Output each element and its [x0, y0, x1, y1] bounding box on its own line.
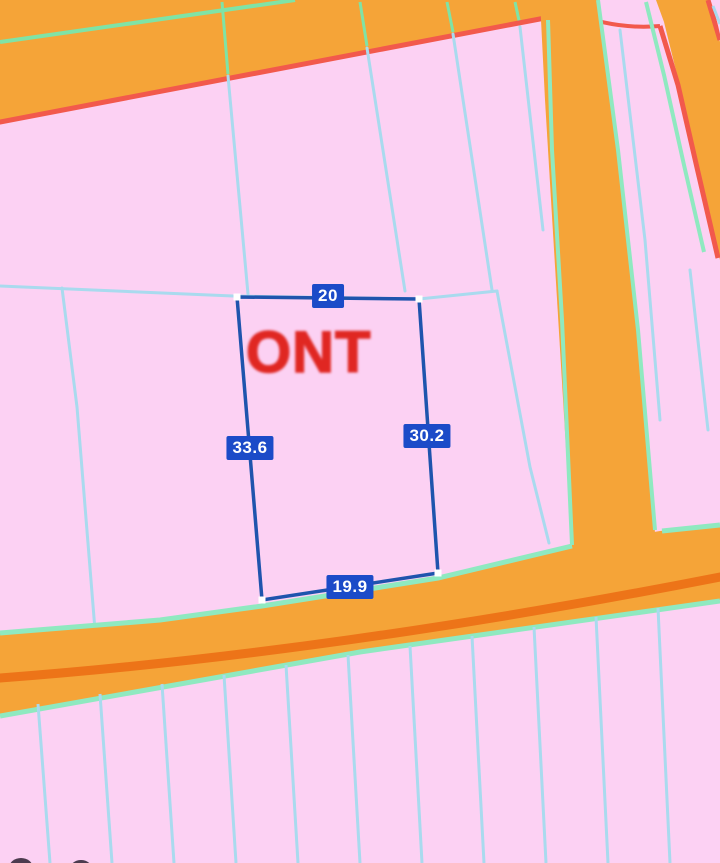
parcel-line — [410, 646, 422, 863]
map-canvas[interactable]: ONT 20 33.6 30.2 19.9 — [0, 0, 720, 863]
clipped-glyph — [9, 858, 33, 863]
parcel-line — [367, 48, 405, 291]
parcel-line — [224, 675, 236, 863]
dimension-badge-top: 20 — [312, 284, 344, 308]
parcel-corner-handle[interactable] — [234, 294, 241, 301]
parcel-line — [286, 665, 298, 863]
parcel-line — [348, 655, 360, 863]
right-road — [540, 0, 655, 548]
parcel-line — [596, 617, 608, 863]
parcel-line — [162, 684, 174, 863]
parcel-watermark-text: ONT — [246, 322, 371, 384]
parcel-line — [472, 636, 484, 863]
parcel-line — [520, 27, 543, 230]
dimension-badge-right: 30.2 — [403, 424, 450, 448]
parcel-line — [62, 288, 95, 630]
right-road-surface — [540, 0, 655, 548]
parcel-line — [690, 270, 708, 430]
dimension-badge-bottom: 19.9 — [326, 575, 373, 599]
parcel-line — [38, 704, 50, 863]
parcel-line — [453, 34, 492, 290]
parcel-map-graphic — [0, 0, 720, 863]
parcel-corner-handle[interactable] — [259, 597, 266, 604]
dimension-badge-left: 33.6 — [226, 436, 273, 460]
parcel-line — [534, 627, 546, 863]
parcel-line — [658, 608, 670, 863]
edge-road-sliver — [646, 0, 720, 260]
parcel-line — [228, 76, 248, 294]
parcel-line — [100, 694, 112, 863]
parcel-corner-handle[interactable] — [416, 296, 423, 303]
parcel-line — [497, 291, 549, 543]
parcel-corner-handle[interactable] — [435, 570, 442, 577]
